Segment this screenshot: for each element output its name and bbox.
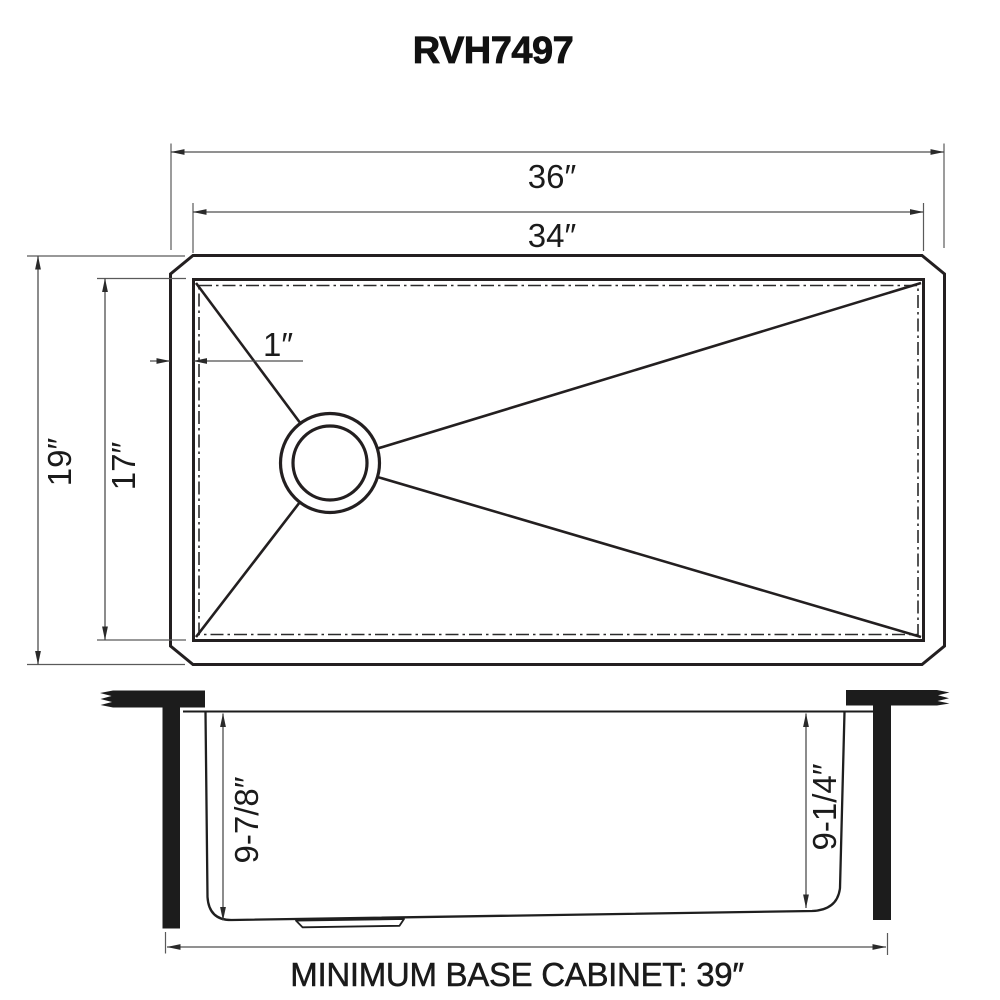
dim-depth-right: 9-1/4″ — [806, 714, 843, 909]
dimension-label: 19″ — [41, 437, 78, 486]
sink-dimension-diagram: RVH7497 36″ 34″ 19″ — [0, 0, 1000, 1000]
base-cabinet-note: MINIMUM BASE CABINET: 39″ — [290, 956, 744, 993]
dim-depth-left: 9-7/8″ — [223, 714, 265, 921]
countertop-left — [100, 691, 205, 708]
countertop-right — [846, 690, 950, 706]
dimension-label: 34″ — [528, 217, 577, 254]
dimension-label: 1″ — [263, 326, 293, 363]
drain-outer-ring — [281, 414, 380, 513]
plan-view — [171, 256, 945, 665]
dimension-label: 36″ — [528, 158, 577, 195]
dimension-label: 9-1/4″ — [806, 763, 843, 850]
cabinet-wall-right — [873, 705, 891, 920]
dim-bowl-width: 34″ — [193, 203, 924, 254]
dim-base-cabinet: MINIMUM BASE CABINET: 39″ — [166, 932, 888, 993]
bowl-cross-section — [206, 712, 845, 920]
section-dimensions: 9-7/8″ 9-1/4″ MINIMUM BASE CABINET: 39″ — [166, 714, 888, 994]
dimension-label: 17″ — [105, 441, 142, 490]
dimension-label: 9-7/8″ — [228, 776, 265, 863]
model-number-title: RVH7497 — [413, 30, 574, 72]
cabinet-wall-left — [163, 707, 181, 929]
drain-fitting — [296, 919, 404, 927]
